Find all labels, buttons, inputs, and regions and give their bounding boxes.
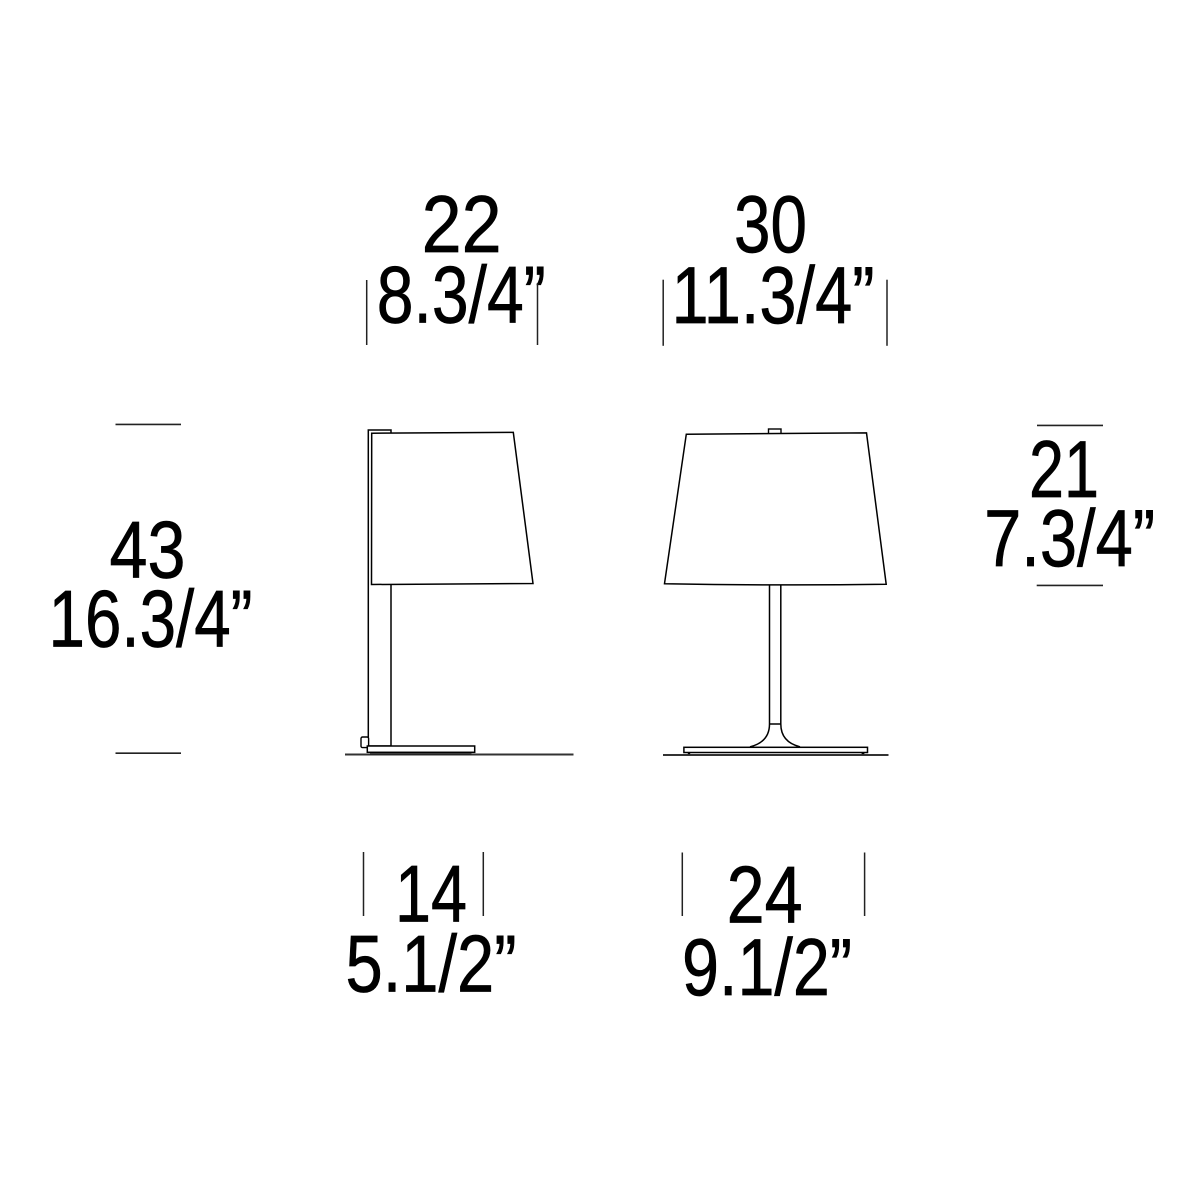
- svg-text:16.3/4”: 16.3/4”: [49, 575, 253, 665]
- svg-text:7.3/4”: 7.3/4”: [984, 494, 1155, 584]
- svg-text:5.1/2”: 5.1/2”: [346, 919, 517, 1009]
- svg-text:8.3/4”: 8.3/4”: [377, 251, 546, 341]
- svg-text:9.1/2”: 9.1/2”: [682, 923, 852, 1013]
- svg-text:11.3/4”: 11.3/4”: [672, 251, 875, 341]
